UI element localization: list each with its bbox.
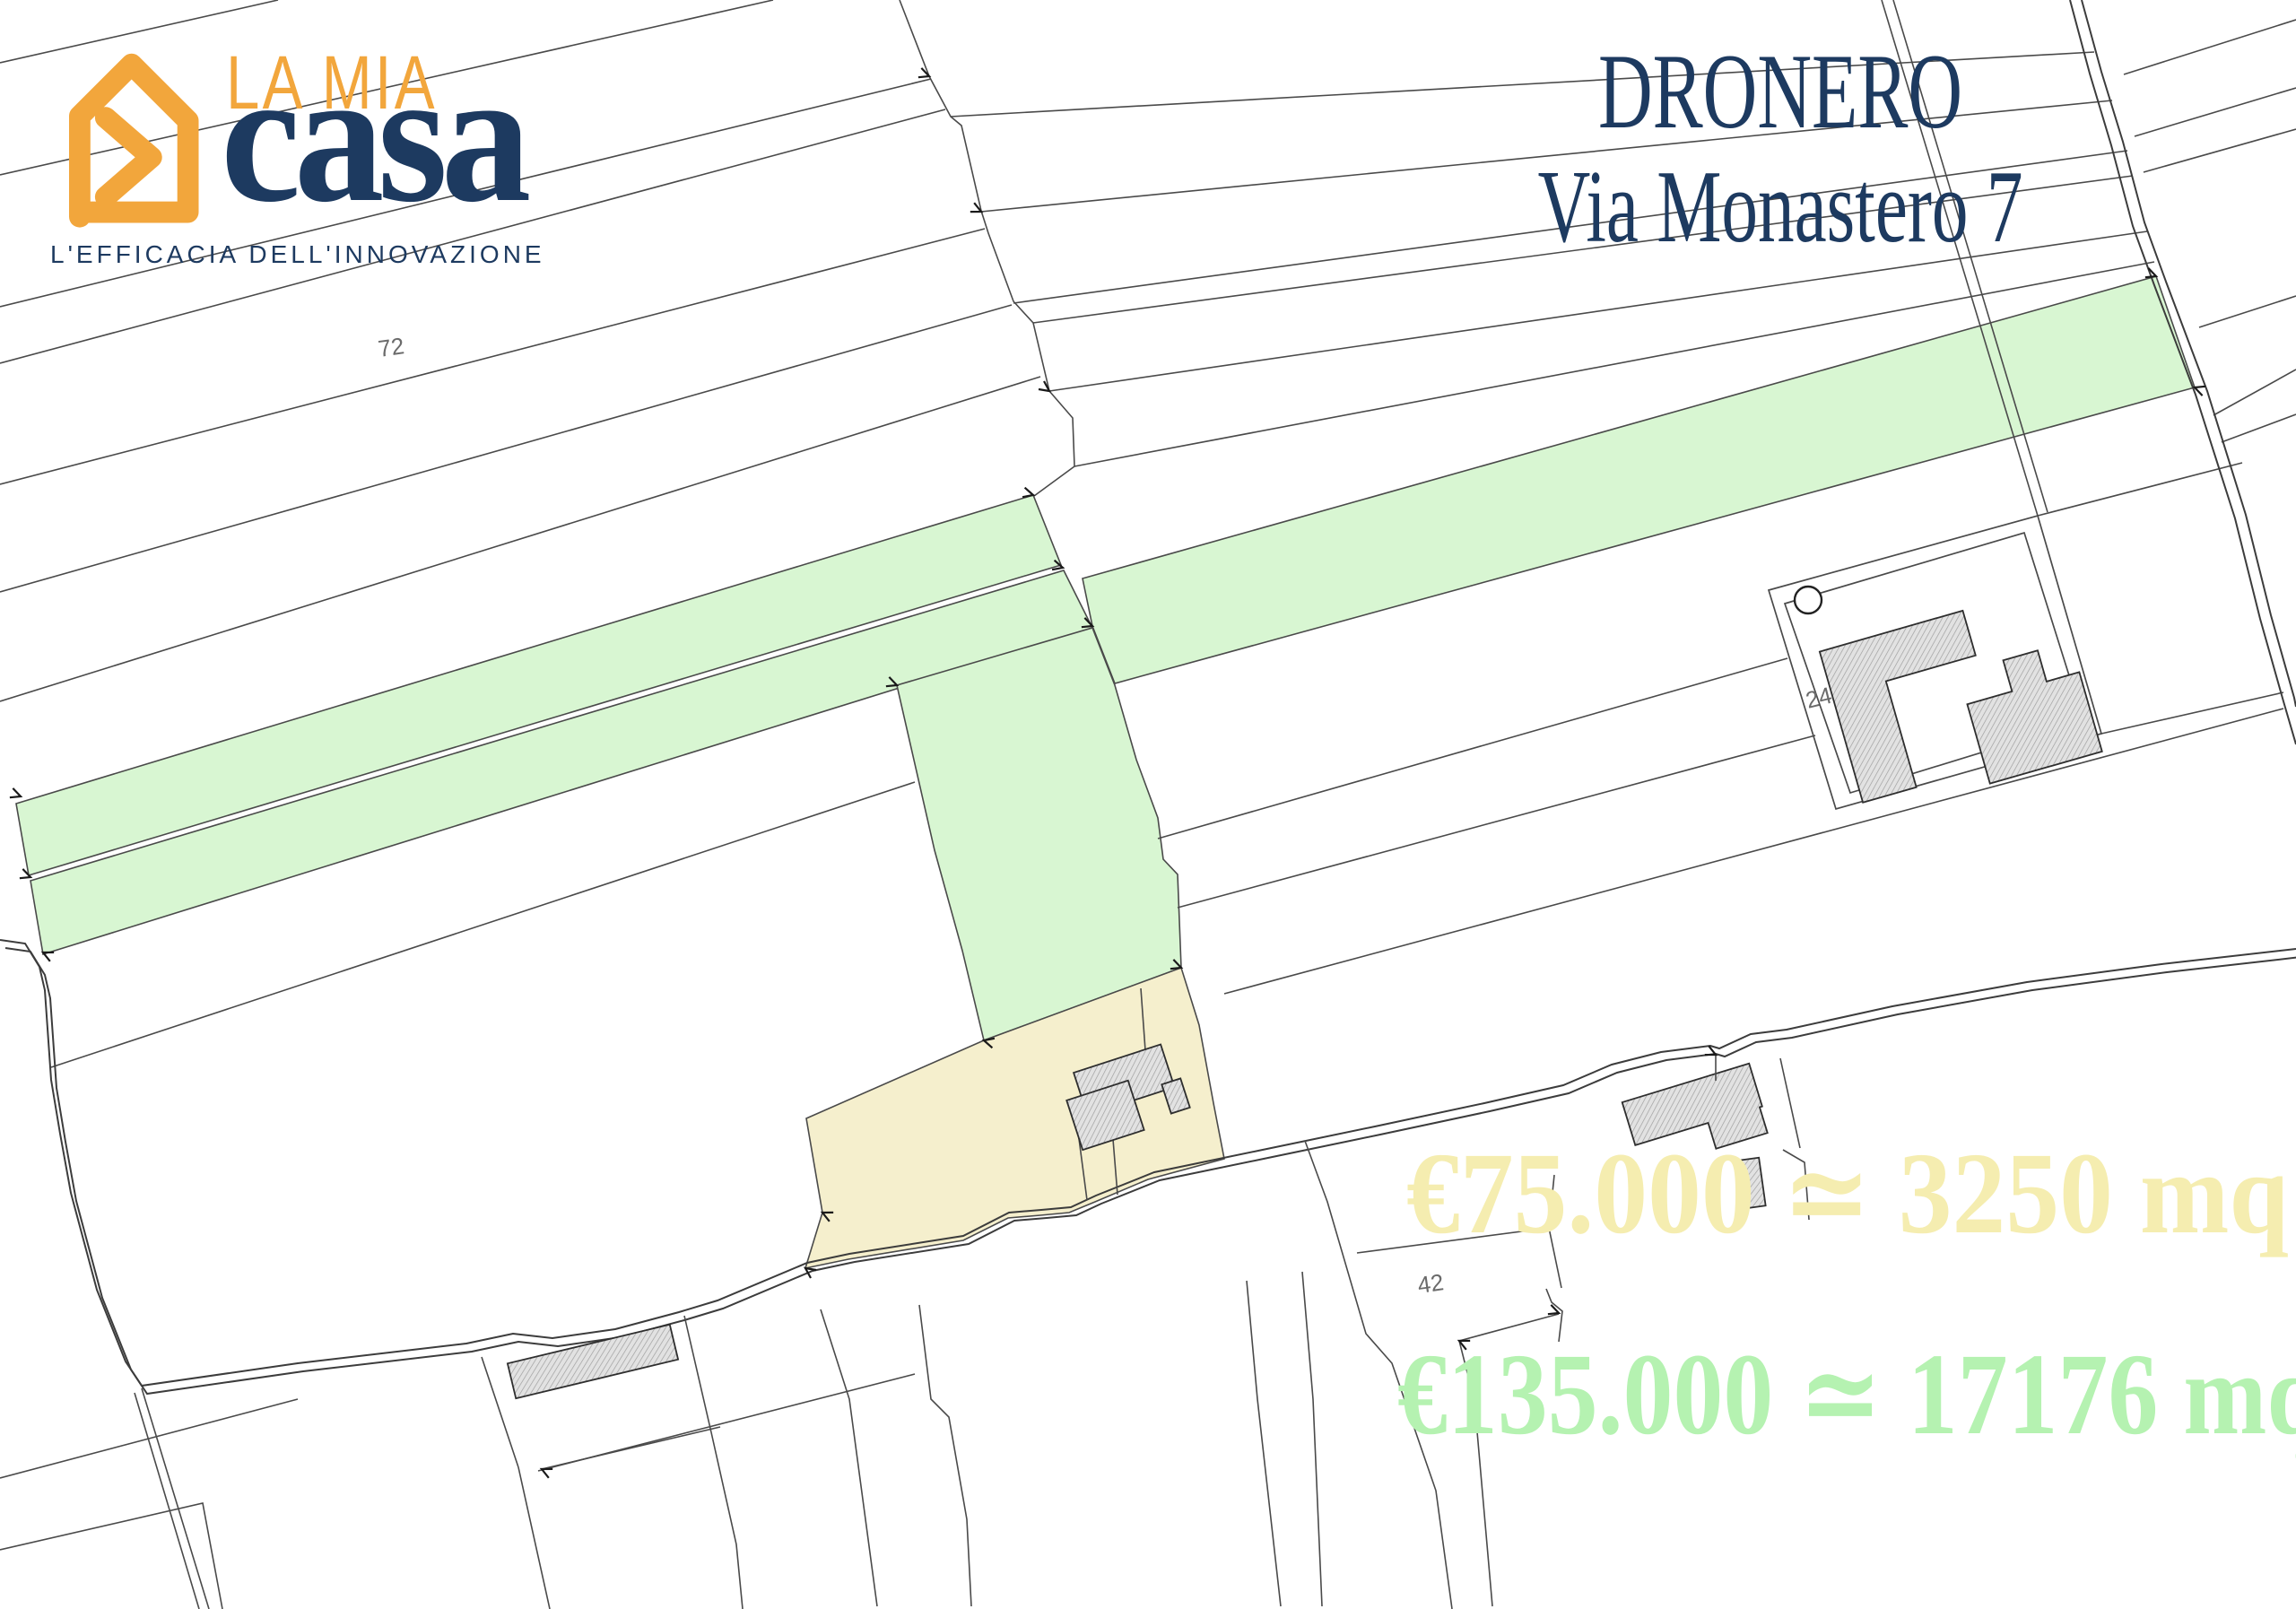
brand-name-main: casa [221,41,525,231]
house-logo-icon [54,41,206,231]
listing-street: Via Monastero 7 [1498,148,2063,267]
offer-green-price: €135.000 ≃ 17176 mq [1397,1324,2296,1462]
parcel-label-72: 72 [377,332,406,362]
well-symbol [1795,587,1822,613]
parcel-label-42: 42 [1416,1268,1446,1299]
green-band-topright [1083,276,2195,683]
green-parcel-vertical [897,628,1181,1040]
zigzag-boundary [900,0,1074,496]
bottomleft-parcels [0,1305,971,1609]
listing-title: DRONERO Via Monastero 7 [1498,34,2063,268]
brand-tagline: L'EFFICACIA DELL'INNOVAZIONE [50,240,545,269]
listing-city: DRONERO [1498,34,2063,148]
offer-yellow-price: €75.000 ≃ 3250 mq [1406,1123,2289,1261]
flyer-canvas: 72 42 24 LA MIA casa L'EFFICACIA DELL'IN… [0,0,2296,1609]
farmstead-enclosure [1769,516,2102,809]
